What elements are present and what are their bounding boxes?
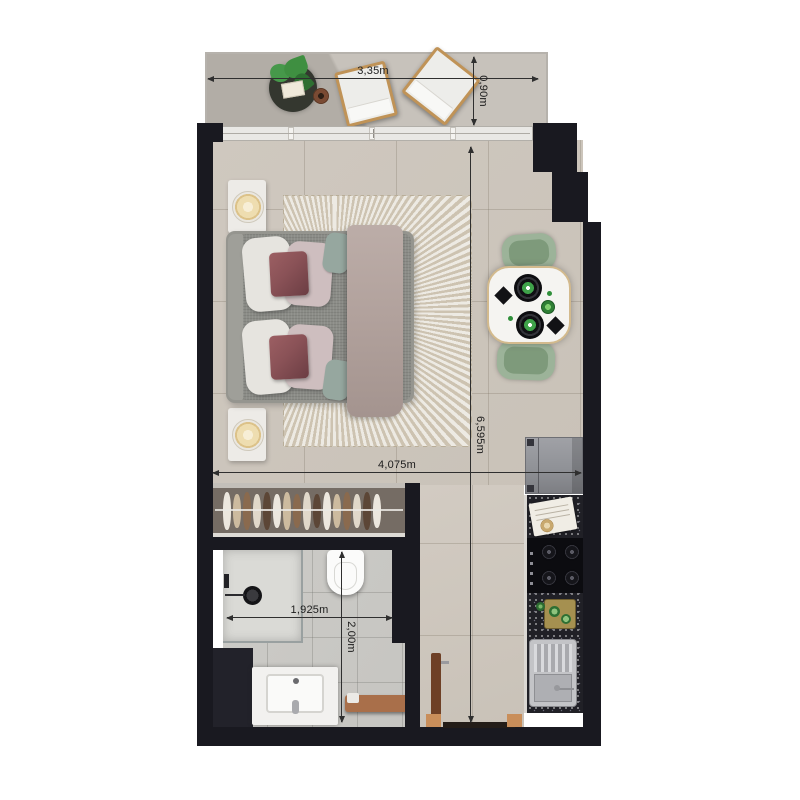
wall-closet-bathroom xyxy=(213,537,408,550)
bed-runner-blanket xyxy=(347,225,403,417)
clothes-item xyxy=(303,492,311,530)
dimension-interior-length: 6,595m xyxy=(470,147,471,722)
faucet-icon xyxy=(293,678,299,684)
burner-icon xyxy=(540,543,558,561)
hanging-clothes xyxy=(223,492,395,530)
floor-plan: 3,35m 0,90m 6,595m 4,075m 1,925m 2,00m xyxy=(0,0,800,800)
toilet xyxy=(327,550,364,595)
faucet-icon xyxy=(554,685,560,691)
shower-enclosure xyxy=(223,550,303,643)
burner-icon xyxy=(563,569,581,587)
dimension-bathroom-width: 1,925m xyxy=(227,617,392,618)
wardrobe-closet xyxy=(213,483,405,540)
faucet-icon xyxy=(292,700,299,714)
cooktop-knobs xyxy=(530,547,533,585)
clothes-item xyxy=(273,494,281,528)
dimension-label: 3,35m xyxy=(357,65,389,77)
nightstand-top xyxy=(228,180,266,233)
wooden-bench xyxy=(345,695,410,712)
shower-valve xyxy=(224,574,229,588)
dimension-bathroom-depth: 2,00m xyxy=(341,552,342,722)
clothes-item xyxy=(373,494,381,528)
dimension-label: 2,00m xyxy=(345,621,357,653)
place-setting xyxy=(516,311,544,339)
clothes-item xyxy=(353,494,361,528)
dimension-label: 6,595m xyxy=(474,416,486,454)
towel-icon xyxy=(347,693,359,703)
pillow-accent xyxy=(269,334,309,380)
dimension-balcony-depth: 0,90m xyxy=(473,57,474,125)
clothes-item xyxy=(223,492,231,530)
wall-toilet-nook xyxy=(392,543,408,643)
dimension-interior-width: 4,075m xyxy=(213,472,581,473)
cooktop xyxy=(527,538,583,593)
door-jamb xyxy=(426,714,441,727)
nightstand-bottom xyxy=(228,408,266,461)
plant-pot-icon xyxy=(536,602,545,611)
clothes-item xyxy=(243,492,251,530)
lamp-icon xyxy=(232,191,264,223)
dining-chair-bottom xyxy=(496,340,555,381)
clothes-item xyxy=(263,492,271,530)
bathroom-dark-niche xyxy=(213,648,253,727)
clothes-item xyxy=(253,494,261,528)
closet-rod xyxy=(215,509,403,511)
bathroom-vanity xyxy=(252,667,338,725)
entry-threshold xyxy=(443,722,515,728)
burner-icon xyxy=(563,543,581,561)
pillow-accent xyxy=(269,251,309,297)
drainboard xyxy=(534,644,572,672)
wall-left xyxy=(197,123,213,746)
clothes-item xyxy=(333,494,341,528)
clothes-item xyxy=(293,494,301,528)
place-setting xyxy=(514,274,542,302)
refrigerator xyxy=(525,437,583,494)
shower-arm xyxy=(225,594,245,596)
clothes-item xyxy=(323,492,331,530)
door-jamb xyxy=(507,714,522,727)
glass-icon xyxy=(547,291,552,296)
wall-right xyxy=(583,222,601,746)
burner-icon xyxy=(540,569,558,587)
kitchen-sink xyxy=(529,639,577,707)
balcony-sliding-door xyxy=(213,126,533,141)
glass-icon xyxy=(508,316,513,321)
clothes-item xyxy=(363,492,371,530)
dimension-label: 0,90m xyxy=(477,75,489,107)
clothes-item xyxy=(313,494,321,528)
clothes-item xyxy=(283,492,291,530)
wall-bottom xyxy=(197,727,601,746)
lamp-icon xyxy=(232,419,264,451)
dimension-label: 1,925m xyxy=(291,604,329,616)
cup-icon xyxy=(541,300,555,314)
clothes-item xyxy=(233,494,241,528)
dimension-label: 4,075m xyxy=(378,459,416,471)
wall-step xyxy=(552,172,588,222)
wall-step xyxy=(533,123,577,172)
shower-head-icon xyxy=(243,586,262,605)
bread-icon xyxy=(539,518,554,533)
clothes-item xyxy=(343,492,351,530)
serving-tray xyxy=(544,599,576,629)
plant-pot-icon xyxy=(313,88,329,104)
door-handle-icon xyxy=(441,661,449,664)
